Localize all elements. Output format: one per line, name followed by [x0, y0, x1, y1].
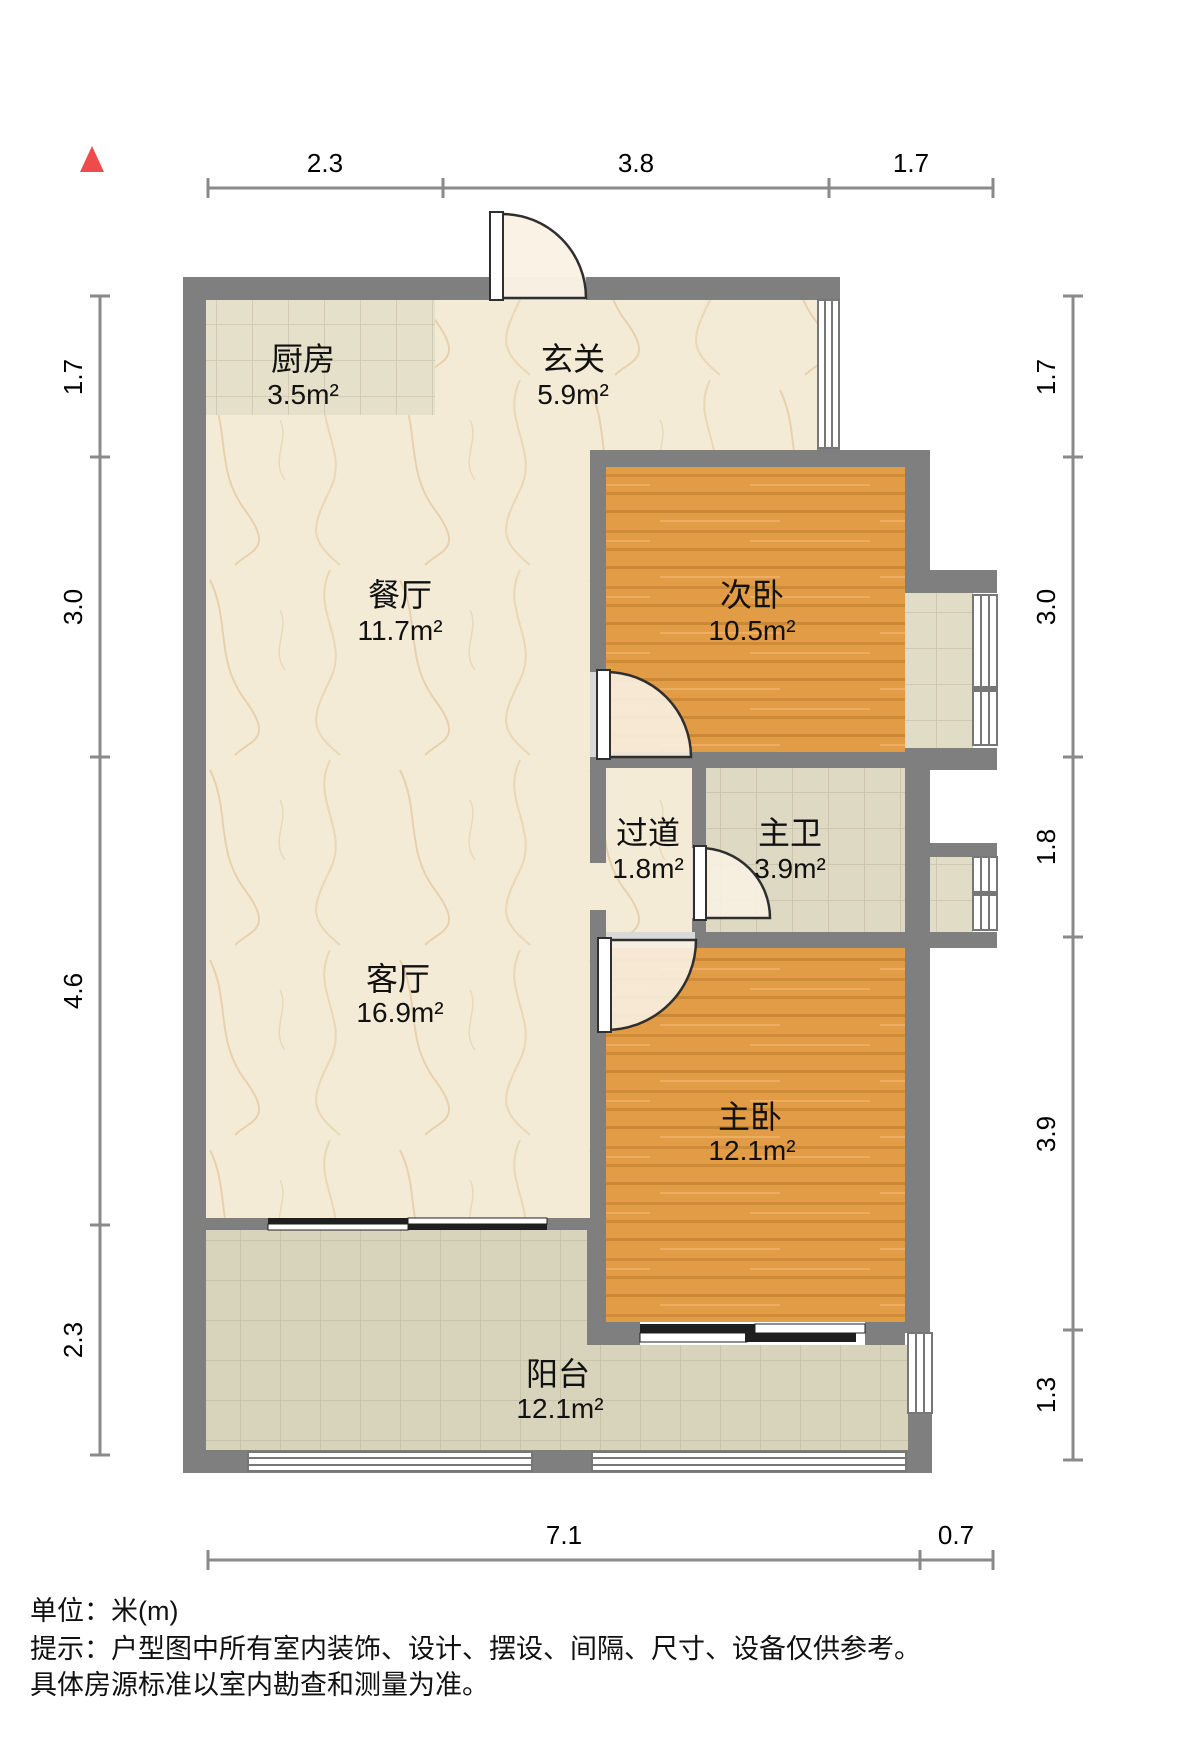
wall-hall-bath-divider	[692, 768, 706, 848]
dim-bottom-1: 7.1	[546, 1520, 582, 1550]
wall-balcony-stub	[587, 1230, 606, 1345]
entry-label: 玄关	[541, 341, 605, 377]
entry-area: 5.9m²	[537, 379, 609, 410]
master-bath-door-leaf	[694, 846, 706, 920]
wall-master-right	[905, 948, 930, 1333]
wall-living-balcony-right	[547, 1218, 590, 1230]
footer-tip-2: 具体房源标准以室内勘查和测量为准。	[30, 1670, 489, 1700]
master-balcony-sliding-door	[640, 1324, 865, 1342]
entry-door-leaf	[490, 212, 503, 300]
wall-inner-vertical-middle	[590, 757, 606, 863]
wall-master-top	[695, 932, 930, 948]
platform-lower-window	[973, 857, 997, 930]
wall-bedroom2-right	[905, 467, 930, 570]
dim-right-4: 3.9	[1031, 1116, 1061, 1152]
wall-master-balcony-right	[865, 1322, 905, 1345]
footer-tip-1: 提示：户型图中所有室内装饰、设计、摆设、间隔、尺寸、设备仅供参考。	[30, 1634, 921, 1664]
master-bedroom-area: 12.1m²	[708, 1135, 795, 1166]
wall-inner-vertical-upper	[590, 450, 606, 672]
platform-upper-floor	[905, 593, 973, 748]
kitchen-label: 厨房	[271, 341, 335, 377]
dim-top-1: 2.3	[307, 148, 343, 178]
dining-area: 11.7m²	[357, 615, 442, 646]
wall-bedroom2-top	[590, 450, 930, 467]
dim-top-3: 1.7	[893, 148, 929, 178]
balcony-bottom-window-right	[592, 1452, 906, 1471]
floorplan-canvas: 厨房 3.5m² 玄关 5.9m² 餐厅 11.7m² 次卧 10.5m² 过道…	[0, 0, 1187, 1752]
wall-left	[183, 277, 206, 1473]
master-bath-area: 3.9m²	[754, 853, 826, 884]
dim-left-1: 1.7	[58, 359, 88, 395]
wall-platform-upper-top	[905, 570, 997, 593]
dim-right-3: 1.8	[1031, 829, 1061, 865]
bedroom2-label: 次卧	[720, 577, 784, 613]
bedroom2-door-leaf	[597, 670, 610, 759]
dim-right-2: 3.0	[1031, 589, 1061, 625]
dining-label: 餐厅	[368, 577, 432, 613]
wall-master-balcony-left	[606, 1322, 640, 1345]
balcony-right-window	[908, 1333, 932, 1413]
hallway-area: 1.8m²	[612, 853, 684, 884]
living-label: 客厅	[366, 961, 430, 997]
floorplan-page: 厨房 3.5m² 玄关 5.9m² 餐厅 11.7m² 次卧 10.5m² 过道…	[0, 0, 1187, 1752]
dim-right-5: 1.3	[1031, 1377, 1061, 1413]
wall-living-balcony-left	[206, 1218, 268, 1230]
bedroom2-area: 10.5m²	[708, 615, 795, 646]
dim-left-4: 2.3	[58, 1322, 88, 1358]
wall-bath-right	[905, 770, 930, 948]
master-bath-label: 主卫	[758, 815, 822, 851]
entry-door	[490, 212, 586, 300]
dim-right-1: 1.7	[1031, 359, 1061, 395]
dim-top-2: 3.8	[618, 148, 654, 178]
master-bedroom-label: 主卧	[718, 1099, 782, 1135]
kitchen-area: 3.5m²	[267, 379, 339, 410]
dim-left-3: 4.6	[58, 973, 88, 1009]
master-bedroom-door-leaf	[598, 938, 611, 1032]
balcony-area: 12.1m²	[516, 1393, 603, 1424]
living-balcony-sliding-door	[268, 1218, 547, 1230]
north-arrow-icon	[80, 146, 104, 172]
living-area: 16.9m²	[356, 997, 443, 1028]
dim-left-2: 3.0	[58, 589, 88, 625]
hallway-label: 过道	[616, 815, 680, 851]
platform-upper-window	[973, 595, 997, 745]
footer-unit: 单位：米(m)	[30, 1596, 178, 1626]
entry-right-window	[818, 300, 839, 448]
balcony-label: 阳台	[526, 1356, 590, 1392]
balcony-bottom-window-left	[248, 1452, 532, 1471]
dim-bottom-2: 0.7	[938, 1520, 974, 1550]
wall-platform-lower-top	[905, 843, 997, 857]
